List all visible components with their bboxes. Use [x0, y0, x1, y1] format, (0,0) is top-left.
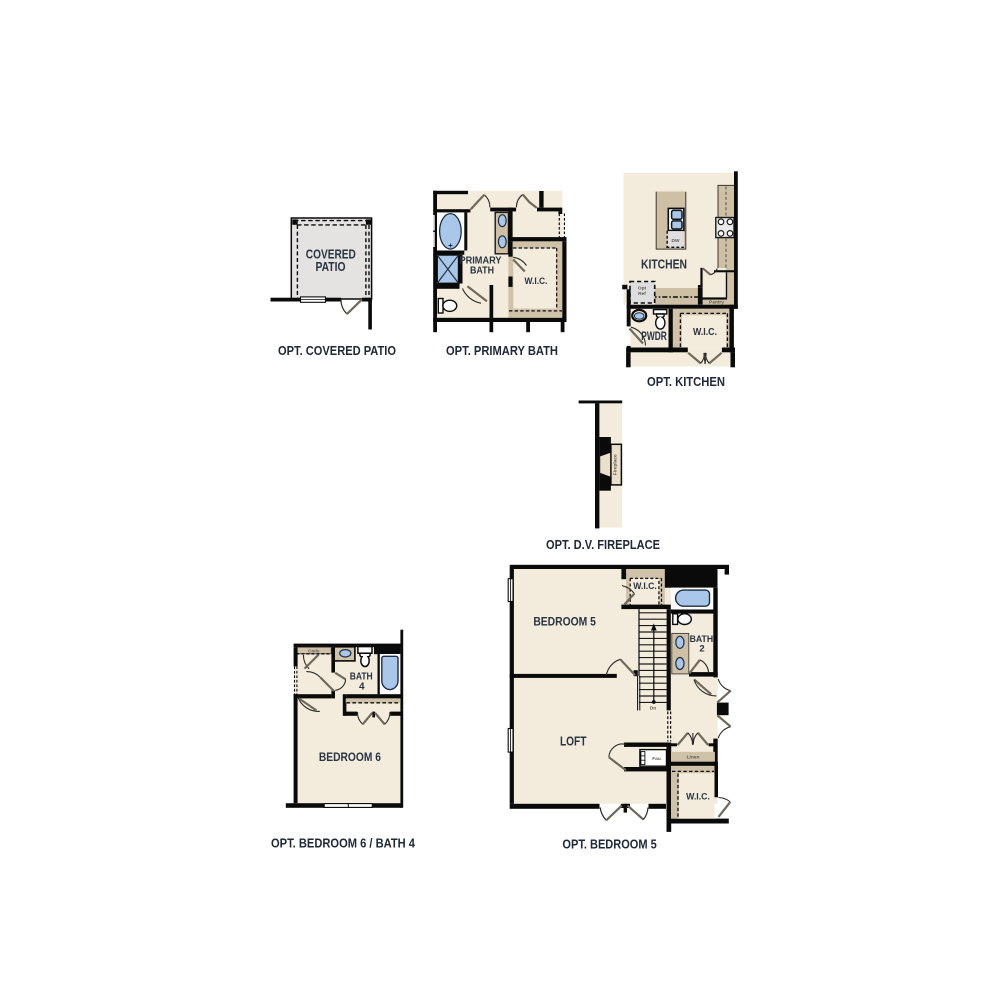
svg-text:OPT. D.V. FIREPLACE: OPT. D.V. FIREPLACE [546, 537, 660, 552]
svg-text:Linen: Linen [687, 755, 700, 761]
svg-text:Dn: Dn [650, 706, 656, 712]
svg-text:Opt: Opt [638, 286, 647, 292]
svg-text:Fau: Fau [652, 756, 661, 762]
svg-text:BATH: BATH [470, 265, 494, 277]
svg-text:W.I.C.: W.I.C. [633, 581, 657, 592]
svg-text:Coils: Coils [308, 649, 320, 654]
svg-text:W.I.C.: W.I.C. [525, 276, 548, 286]
svg-text:W.I.C.: W.I.C. [693, 326, 717, 338]
svg-text:OPT. COVERED PATIO: OPT. COVERED PATIO [278, 343, 396, 358]
svg-text:4: 4 [359, 682, 365, 693]
svg-text:LOFT: LOFT [560, 734, 587, 749]
svg-text:KITCHEN: KITCHEN [641, 258, 687, 272]
svg-text:BEDROOM 6: BEDROOM 6 [319, 750, 381, 764]
svg-text:DW: DW [672, 238, 680, 244]
svg-text:PWDR: PWDR [641, 331, 667, 343]
svg-text:OPT. BEDROOM 6 / BATH 4: OPT. BEDROOM 6 / BATH 4 [271, 836, 416, 851]
svg-text:OPT. KITCHEN: OPT. KITCHEN [647, 374, 725, 389]
svg-text:Ref: Ref [638, 291, 646, 297]
svg-text:W.I.C.: W.I.C. [686, 792, 710, 803]
svg-text:BEDROOM 5: BEDROOM 5 [533, 615, 596, 629]
svg-text:OPT. BEDROOM 5: OPT. BEDROOM 5 [562, 836, 656, 851]
svg-text:Fireplace: Fireplace [612, 454, 618, 475]
svg-text:PATIO: PATIO [316, 259, 346, 274]
svg-text:OPT. PRIMARY BATH: OPT. PRIMARY BATH [446, 343, 558, 358]
svg-text:2: 2 [699, 643, 704, 654]
